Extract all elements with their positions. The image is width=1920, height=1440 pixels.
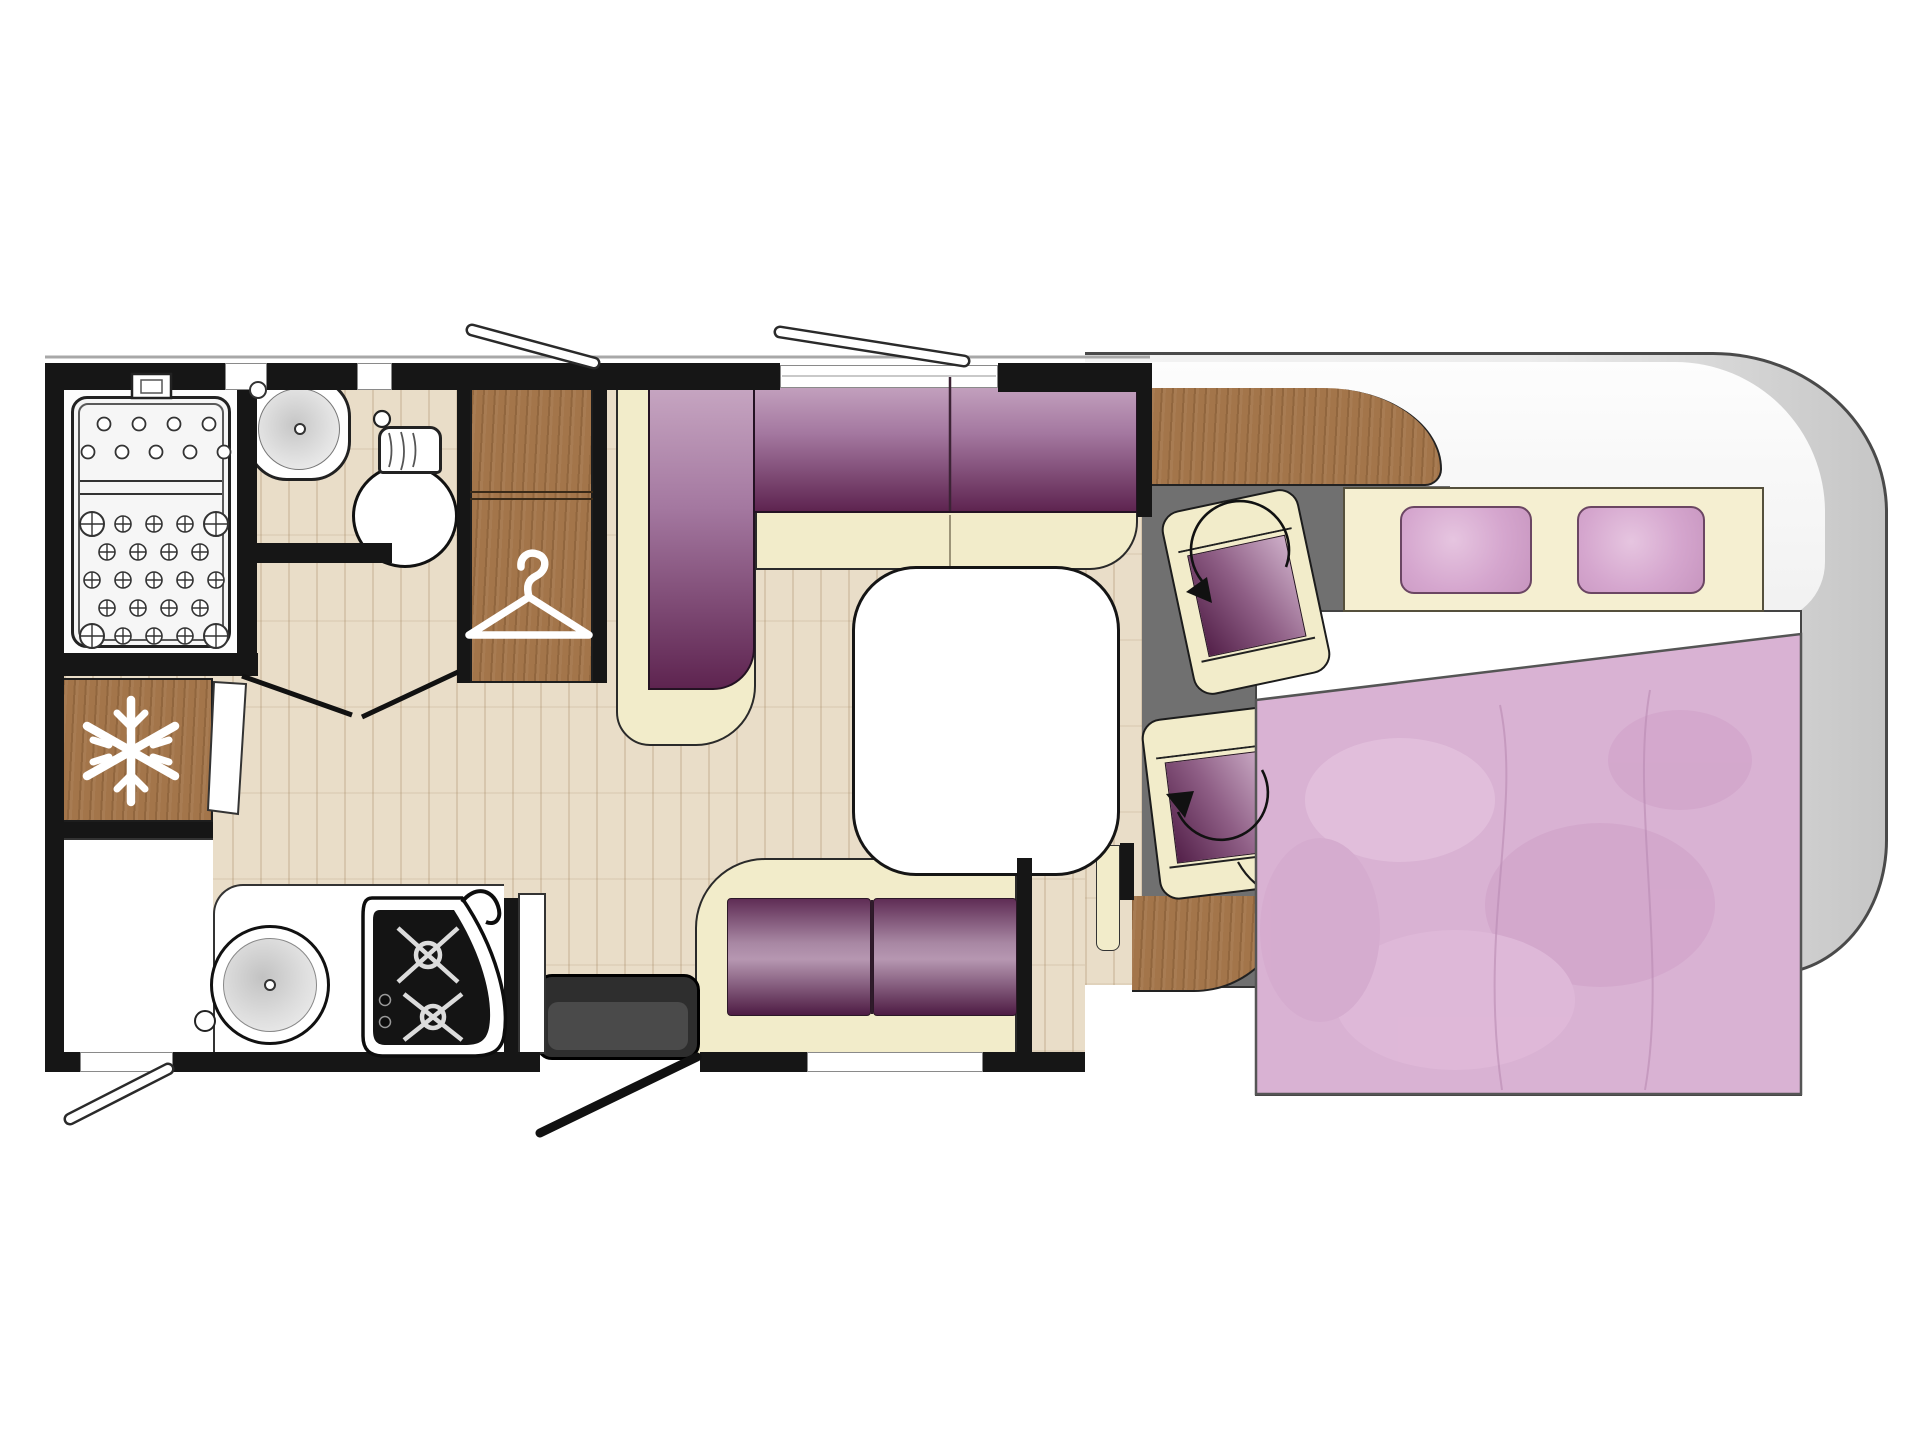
entry-door-swing bbox=[540, 1057, 697, 1133]
wall-bottom-1 bbox=[45, 1052, 80, 1072]
sink-drain bbox=[264, 979, 276, 991]
wall-shower-bottom bbox=[45, 653, 258, 676]
window-bench bbox=[807, 1052, 983, 1072]
wall-bench-right bbox=[1017, 858, 1032, 1056]
seat-cushion bbox=[1165, 750, 1277, 863]
wall-bathroom-bottom bbox=[237, 543, 392, 563]
window-lounge bbox=[780, 365, 998, 388]
wall-cab-corner bbox=[1120, 843, 1134, 900]
fridge bbox=[50, 678, 213, 822]
wardrobe bbox=[470, 388, 593, 683]
wall-bottom-3 bbox=[700, 1052, 807, 1072]
wall-fridge-bottom bbox=[45, 822, 213, 838]
washbasin-bowl bbox=[258, 388, 340, 470]
sink-tap bbox=[194, 1010, 216, 1032]
wall-wardrobe-right bbox=[593, 388, 607, 683]
floor-plan-canvas bbox=[0, 0, 1920, 1440]
wall-top-3 bbox=[392, 363, 780, 390]
wall-top-1 bbox=[45, 363, 225, 390]
kitchen-counter-left bbox=[64, 838, 213, 1052]
wall-counter-end bbox=[504, 898, 518, 1052]
window-bottom-left bbox=[80, 1052, 173, 1072]
toilet-cistern bbox=[378, 426, 442, 474]
entry-step-tread bbox=[548, 1002, 688, 1050]
wall-top-2 bbox=[267, 363, 357, 390]
cab-side-panel bbox=[1096, 845, 1120, 951]
wall-left bbox=[45, 363, 64, 1072]
window-top-1 bbox=[225, 363, 267, 390]
entry-door-panel bbox=[518, 893, 546, 1054]
wall-bottom-4 bbox=[983, 1052, 1085, 1072]
wall-bottom-2 bbox=[173, 1052, 540, 1072]
bed-mattress bbox=[1255, 610, 1802, 1096]
bed-pillow-right bbox=[1577, 506, 1705, 594]
wall-bath-wardrobe bbox=[457, 388, 470, 683]
bench-cushion-right bbox=[873, 898, 1017, 1016]
seat-cushion bbox=[1187, 535, 1306, 658]
bench-cushion-left bbox=[727, 898, 871, 1016]
window-top-2 bbox=[357, 363, 392, 390]
dinette-table bbox=[852, 566, 1120, 876]
wall-shower-right bbox=[237, 388, 257, 672]
shower-tray-inner bbox=[78, 403, 224, 641]
sofa-backrest-left bbox=[648, 375, 755, 690]
bed-pillow-left bbox=[1400, 506, 1532, 594]
cab-seat-driver bbox=[1139, 704, 1300, 902]
wall-top-4 bbox=[998, 363, 1152, 392]
wall-cab-divider bbox=[1137, 377, 1152, 517]
